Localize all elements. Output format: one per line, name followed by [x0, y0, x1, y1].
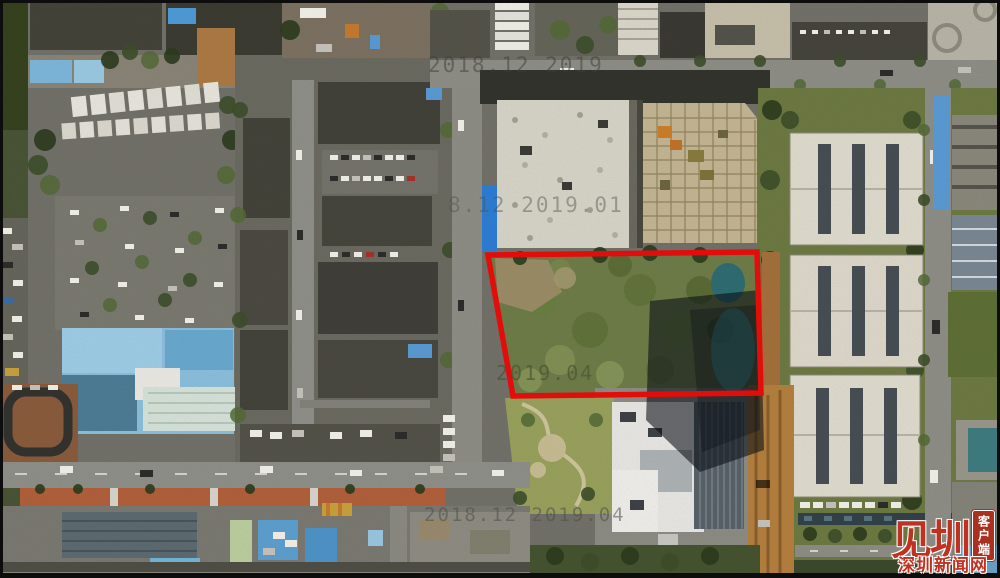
logo-brand-glyphs: 见圳 [891, 520, 969, 561]
logo-site-name: 深圳新闻网 [898, 558, 988, 575]
frame-bottom [0, 573, 1000, 578]
photo-grain [0, 0, 1000, 578]
logo-client-seal: 客户端 [972, 510, 995, 561]
aerial-photo: 2018.12 2019 8.12 2019.01 2019.04 2018.1… [0, 0, 1000, 578]
screenshot-root: 2018.12 2019 8.12 2019.01 2019.04 2018.1… [0, 0, 1000, 578]
logo-seal-text: 客户端 [978, 515, 990, 557]
news-logo: 见圳 客户端 深圳新闻网 [891, 510, 995, 575]
